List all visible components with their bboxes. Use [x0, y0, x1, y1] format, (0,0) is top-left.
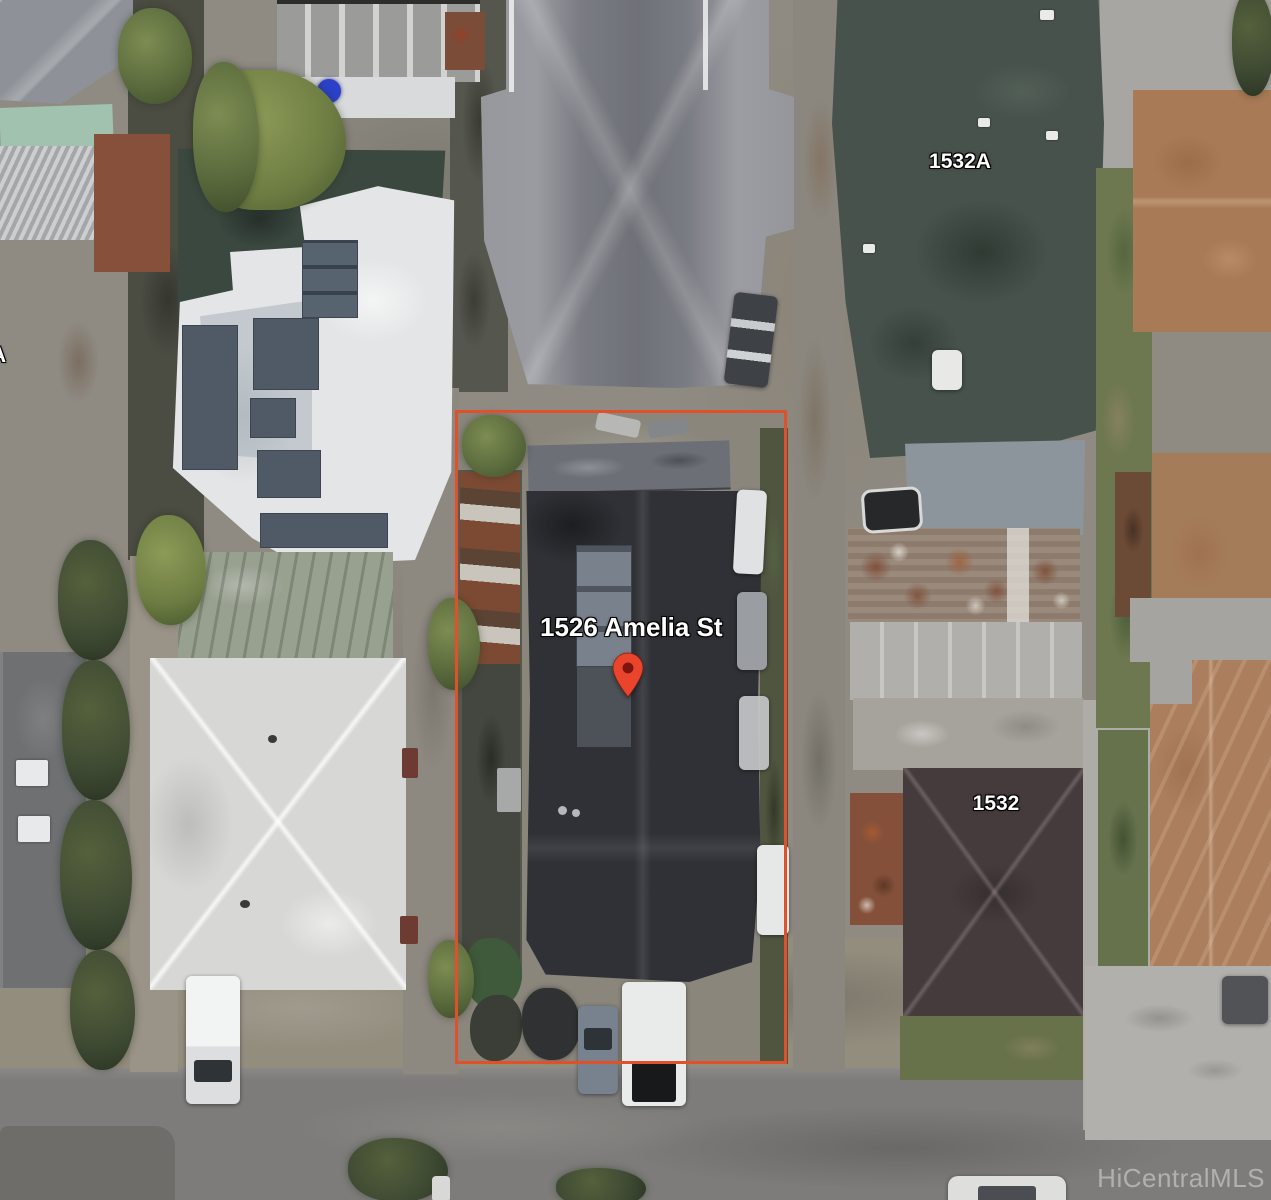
- dark-vehicle: [861, 486, 924, 534]
- solar-panel-array: [250, 398, 296, 438]
- tree: [193, 62, 259, 212]
- white-van: [186, 976, 240, 1104]
- rusty-patch-top: [445, 12, 485, 70]
- tree: [58, 540, 128, 660]
- roof-vent: [978, 118, 990, 127]
- small-white-object: [432, 1176, 450, 1200]
- tree: [1232, 0, 1271, 96]
- roof-vent: [863, 244, 875, 253]
- grass-strip-right-lower: [1098, 730, 1148, 1002]
- patchy-concrete-area: [853, 698, 1083, 770]
- roof-detail-dot: [268, 735, 277, 743]
- tree: [70, 950, 135, 1070]
- building-rusty-roof-upper-left: [94, 134, 170, 272]
- neighbor-address-label-partial: 3A: [0, 342, 38, 368]
- subject-address-label: 1526 Amelia St: [540, 612, 720, 643]
- building-tan-roof-top-right: [1133, 90, 1271, 332]
- pale-roof-band: [850, 622, 1082, 700]
- chimney: [402, 748, 418, 778]
- tree: [136, 515, 206, 625]
- neighbor-address-label-1532: 1532: [950, 792, 1042, 816]
- building-white-hip-roof-lower-left: [150, 658, 406, 990]
- mls-watermark: HiCentralMLS: [1097, 1163, 1265, 1194]
- property-boundary-outline: [455, 410, 787, 1064]
- rust-mottling: [848, 528, 1080, 625]
- satellite-photo: 1526 Amelia St 1532A 1532 3A HiCentralML…: [0, 0, 1271, 1200]
- rusty-patch-left-of-1532: [850, 793, 906, 925]
- brown-shed: [1115, 472, 1151, 617]
- grass-patch-below-1532: [900, 1016, 1088, 1080]
- building-1532a-slate-extension: [905, 440, 1085, 535]
- road-dark-patch: [0, 1126, 175, 1200]
- tree: [62, 660, 130, 800]
- building-corrugated-metal-roof: [0, 146, 106, 240]
- dark-car-bottom-right: [1222, 976, 1268, 1024]
- roof-vent: [18, 816, 50, 842]
- roof-white-strip: [1007, 528, 1029, 625]
- roof-vent: [16, 760, 48, 786]
- roof-vent: [1040, 10, 1054, 20]
- roof-gutter-highlight: [509, 0, 514, 92]
- roof-gutter-highlight: [703, 0, 708, 90]
- white-car-on-road: [948, 1176, 1066, 1200]
- white-rooftop-structure: [932, 350, 962, 390]
- chimney: [400, 916, 418, 944]
- roof-notch: [1150, 658, 1192, 704]
- roof-detail-dot: [240, 900, 250, 908]
- map-pin-icon: [612, 652, 644, 698]
- solar-panel-array: [182, 325, 238, 470]
- roof-vent: [1046, 131, 1058, 140]
- building-tan-roof-bottom-right: [1150, 660, 1271, 972]
- gray-gap-between-roofs: [1130, 598, 1271, 662]
- neighbor-address-label-1532a: 1532A: [905, 150, 1015, 174]
- solar-panel-array: [257, 450, 321, 498]
- concrete-pad: [178, 552, 393, 664]
- solar-panel-array: [260, 513, 388, 548]
- solar-panel-array: [302, 240, 358, 318]
- building-1532a-green-roof: [832, 0, 1104, 458]
- solar-panel-array: [253, 318, 319, 390]
- tree: [60, 800, 132, 950]
- tree: [118, 8, 192, 104]
